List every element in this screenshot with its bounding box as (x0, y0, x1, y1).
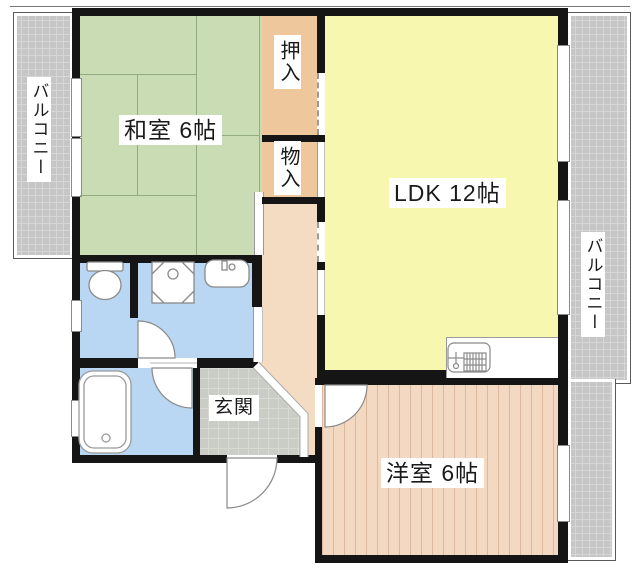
wall-washitsu-bottom (72, 255, 262, 263)
wall-washroom-right (252, 258, 262, 307)
label-ldk: LDK 12帖 (389, 178, 506, 208)
label-genkan: 玄関 (209, 395, 259, 421)
outer-boundary-line (10, 6, 630, 7)
window-washitsu-2 (71, 138, 82, 197)
wall-toilet-partition (130, 263, 138, 318)
wall-left (72, 8, 80, 463)
window-washitsu-1 (71, 78, 82, 137)
wall-top (72, 8, 560, 16)
wall-oshiire-ldk-1 (317, 16, 325, 73)
window-ldk-1 (557, 45, 570, 162)
label-washitsu: 和室 6帖 (119, 115, 222, 145)
kitchen-counter-area (446, 337, 559, 379)
wall-monoire-bottom (262, 197, 325, 204)
window-yoshitsu (557, 445, 570, 522)
wall-hall-ldk-3 (317, 315, 325, 378)
window-toilet (71, 300, 82, 332)
opening-hall-ldk (317, 270, 325, 315)
opening-monoire-ldk (317, 142, 325, 197)
opening-hall-washroom (253, 307, 263, 362)
wall-washroom-bottom-left (72, 358, 138, 368)
label-balcony-right: バルコニー (581, 232, 605, 337)
wall-yoshitsu-top (317, 378, 568, 385)
wall-hall-ldk-2 (317, 262, 325, 270)
sliding-door-hall-ldk (317, 222, 325, 262)
label-balcony-left: バルコニー (27, 77, 51, 182)
wall-hall-ldk-1 (317, 204, 325, 222)
toilet-and-washroom (80, 263, 258, 360)
door-entrance (227, 458, 277, 508)
wall-bottom-yoshitsu (315, 555, 568, 563)
bathroom (80, 368, 193, 455)
label-yoshitsu: 洋室 6帖 (381, 458, 484, 488)
balcony-right-lower (568, 379, 616, 561)
wall-genkan-top (193, 358, 258, 368)
wall-bath-genkan (193, 358, 200, 457)
doorway-entrance (227, 455, 277, 463)
window-bathroom (71, 400, 82, 437)
doorway-yoshitsu (315, 385, 322, 427)
doorway-washroom-bath (138, 358, 197, 368)
window-ldk-2 (557, 200, 570, 315)
sliding-door-washitsu-ldk (317, 73, 325, 135)
floor-plan: 和室 6帖 LDK 12帖 洋室 6帖 玄関 押入 物入 バルコニー バルコニー (0, 0, 640, 578)
label-monoire: 物入 (274, 141, 301, 195)
wall-ldk-bottom (317, 370, 446, 378)
label-oshiire: 押入 (274, 35, 301, 89)
